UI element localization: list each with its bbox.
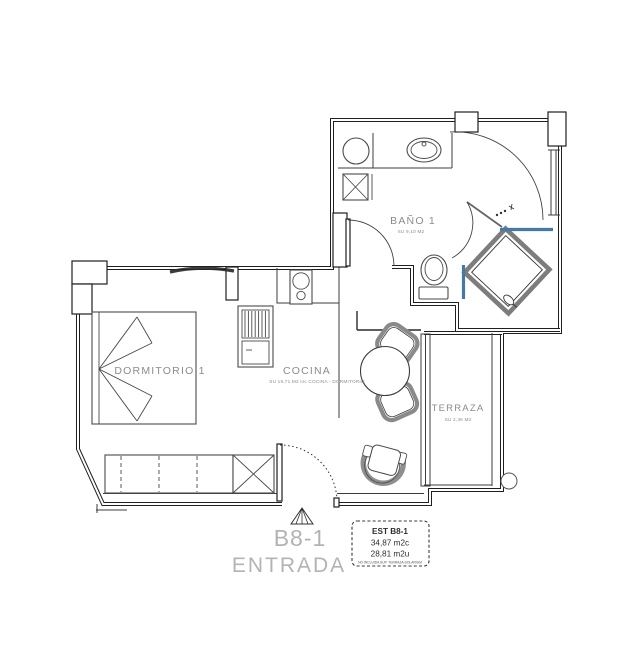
entrance-marker-icon xyxy=(291,508,313,524)
wardrobe-icon xyxy=(105,455,233,493)
info-box-note: NO INCLUIDA SUP. TERRAZA-SOLARIUM xyxy=(358,561,422,565)
bidet-box-icon xyxy=(343,174,372,200)
washing-machine-icon xyxy=(343,138,369,164)
info-box-built-area: 34,87 m2c xyxy=(371,539,409,548)
terrace-area-label: SU 2,36 M2 xyxy=(445,417,472,422)
refrigerator-icon xyxy=(238,306,273,367)
entrance-labels: B8-1 ENTRADA xyxy=(232,525,346,577)
floor-plan: BAÑO 1 SU 9,10 M2 DORMITORIO 1 COCINA SU… xyxy=(0,0,630,652)
bathroom-sink-icon xyxy=(407,138,441,162)
info-box: EST B8-1 34,87 m2c 28,81 m2u NO INCLUIDA… xyxy=(352,521,429,566)
bedroom-label: DORMITORIO 1 xyxy=(114,365,205,377)
terrace-label: TERRAZA xyxy=(432,403,485,414)
kitchen-area-label: SU 19,71 M2 inc COCINA - DORMITORIO xyxy=(269,379,365,384)
dining-table-icon xyxy=(361,347,410,396)
info-box-usable-area: 28,81 m2u xyxy=(371,550,410,559)
entrance-label: ENTRADA xyxy=(232,554,346,577)
terrace-drain-icon xyxy=(501,473,517,489)
wall-annotation-mark xyxy=(170,268,234,272)
entrance-door-icon xyxy=(277,444,339,507)
kitchen-label: COCINA xyxy=(283,365,331,377)
toilet-icon xyxy=(419,255,448,299)
cooktop-icon xyxy=(290,270,312,304)
bathroom-area-label: SU 9,10 M2 xyxy=(398,229,425,234)
bathroom-label: BAÑO 1 xyxy=(390,214,436,227)
info-box-title: EST B8-1 xyxy=(372,527,408,536)
shower-icon xyxy=(465,229,551,315)
closet-icon xyxy=(233,455,274,493)
unit-label: B8-1 xyxy=(274,525,327,551)
sliding-door-icon xyxy=(421,334,430,486)
armchair-icon xyxy=(357,442,408,488)
